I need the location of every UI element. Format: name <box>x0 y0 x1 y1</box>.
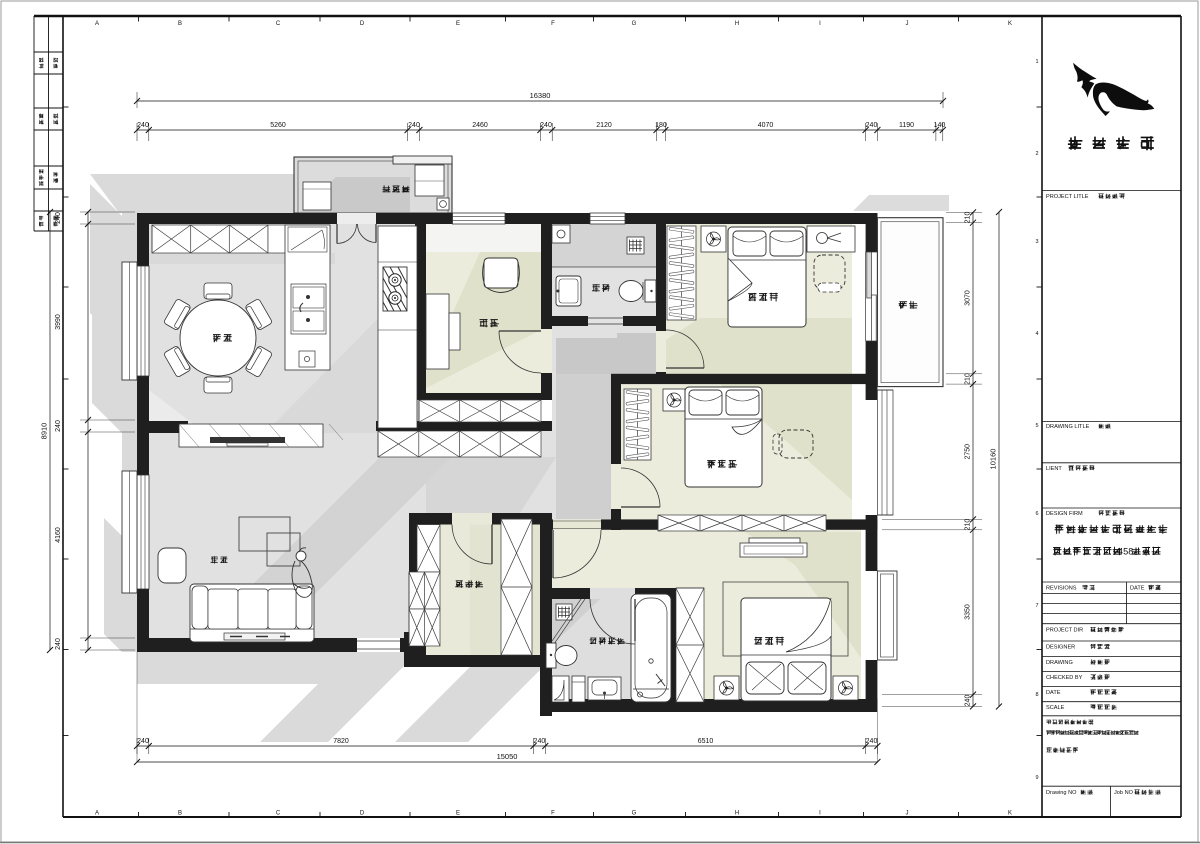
svg-text:3070: 3070 <box>965 290 972 306</box>
svg-text:SCALE: SCALE <box>1046 705 1065 711</box>
svg-text:210: 210 <box>965 519 972 531</box>
svg-text:2460: 2460 <box>472 122 488 129</box>
svg-text:15050: 15050 <box>497 752 518 761</box>
svg-text:3350: 3350 <box>965 604 972 620</box>
svg-text:F: F <box>551 811 555 817</box>
svg-text:5260: 5260 <box>270 122 286 129</box>
svg-text:C: C <box>276 811 281 817</box>
svg-text:Job NO: Job NO <box>1114 790 1134 796</box>
svg-text:A: A <box>95 21 99 27</box>
svg-text:CHECKED BY: CHECKED BY <box>1046 675 1083 681</box>
svg-text:4070: 4070 <box>758 122 774 129</box>
svg-text:H: H <box>735 21 739 27</box>
svg-text:DRAWING: DRAWING <box>1046 660 1073 666</box>
svg-text:K: K <box>1008 811 1012 817</box>
svg-text:DESIGN FIRM: DESIGN FIRM <box>1046 511 1083 517</box>
svg-text:4160: 4160 <box>55 527 62 543</box>
svg-text:240: 240 <box>408 122 420 129</box>
svg-text:2120: 2120 <box>596 122 612 129</box>
svg-text:K: K <box>1008 21 1012 27</box>
svg-text:10160: 10160 <box>989 449 998 470</box>
svg-text:240: 240 <box>55 638 62 650</box>
svg-text:6510: 6510 <box>698 738 714 745</box>
svg-text:PROJECT DIR: PROJECT DIR <box>1046 628 1083 634</box>
svg-text:G: G <box>632 811 637 817</box>
svg-text:8: 8 <box>1035 692 1038 698</box>
svg-text:A: A <box>95 811 99 817</box>
svg-text:1190: 1190 <box>899 122 914 129</box>
svg-text:7820: 7820 <box>333 738 349 745</box>
svg-text:DATE: DATE <box>1046 690 1061 696</box>
svg-text:J: J <box>906 21 909 27</box>
svg-text:B: B <box>178 811 182 817</box>
svg-text:5: 5 <box>1035 423 1038 429</box>
svg-text:LIENT: LIENT <box>1046 466 1062 472</box>
svg-text:2750: 2750 <box>965 444 972 460</box>
svg-text:240: 240 <box>540 122 552 129</box>
svg-text:C: C <box>276 21 281 27</box>
svg-text:210: 210 <box>965 373 972 385</box>
svg-text:240: 240 <box>55 212 62 224</box>
svg-text:210: 210 <box>965 212 972 224</box>
svg-text:240: 240 <box>534 738 546 745</box>
svg-text:3990: 3990 <box>55 314 62 330</box>
svg-text:458: 458 <box>1118 547 1133 557</box>
svg-text:3: 3 <box>1035 239 1038 245</box>
svg-text:H: H <box>735 811 739 817</box>
svg-text:1: 1 <box>1035 59 1038 65</box>
svg-text:140: 140 <box>934 122 946 129</box>
svg-text:240: 240 <box>137 122 149 129</box>
svg-text:240: 240 <box>137 738 149 745</box>
svg-text:7: 7 <box>1035 603 1038 609</box>
svg-text:J: J <box>906 811 909 817</box>
svg-text:180: 180 <box>655 122 667 129</box>
svg-text:Drawing NO: Drawing NO <box>1046 790 1077 796</box>
svg-text:DATE: DATE <box>1130 586 1145 592</box>
svg-text:DRAWING LITLE: DRAWING LITLE <box>1046 424 1090 430</box>
svg-text:8910: 8910 <box>40 423 49 440</box>
svg-text:D: D <box>360 21 365 27</box>
svg-text:F: F <box>551 21 555 27</box>
svg-text:240: 240 <box>55 420 62 432</box>
svg-text:G: G <box>632 21 637 27</box>
svg-text:6: 6 <box>1035 511 1038 517</box>
svg-text:16380: 16380 <box>530 91 551 100</box>
svg-text:4: 4 <box>1035 331 1038 337</box>
svg-text:240: 240 <box>965 695 972 707</box>
svg-text:2: 2 <box>1035 151 1038 157</box>
svg-text:PROJECT LITLE: PROJECT LITLE <box>1046 194 1089 200</box>
svg-text:D: D <box>360 811 365 817</box>
svg-text:240: 240 <box>866 122 878 129</box>
svg-text:E: E <box>456 811 460 817</box>
svg-text:240: 240 <box>866 738 878 745</box>
svg-text:E: E <box>456 21 460 27</box>
svg-text:9: 9 <box>1035 775 1038 781</box>
svg-text:DESIGNER: DESIGNER <box>1046 645 1075 651</box>
svg-text:B: B <box>178 21 182 27</box>
svg-text:REVISIONS: REVISIONS <box>1046 586 1077 592</box>
